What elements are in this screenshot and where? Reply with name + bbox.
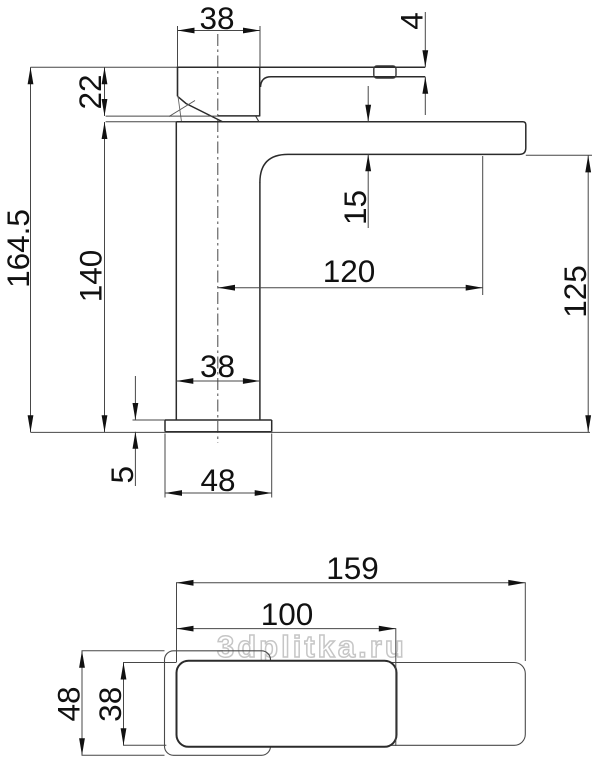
svg-text:120: 120 [323,253,376,289]
svg-text:48: 48 [51,686,87,721]
svg-text:38: 38 [199,0,234,36]
svg-text:100: 100 [261,596,314,632]
svg-text:48: 48 [200,462,235,498]
svg-text:159: 159 [326,550,379,586]
svg-text:22: 22 [72,74,108,109]
svg-text:5: 5 [104,466,140,484]
svg-text:3dplitka.ru: 3dplitka.ru [217,629,407,664]
svg-text:164.5: 164.5 [0,209,36,288]
svg-text:38: 38 [92,687,128,722]
svg-text:125: 125 [557,265,593,318]
svg-text:15: 15 [337,190,373,225]
svg-text:4: 4 [394,12,430,30]
svg-text:38: 38 [200,348,235,384]
svg-text:140: 140 [73,250,109,303]
